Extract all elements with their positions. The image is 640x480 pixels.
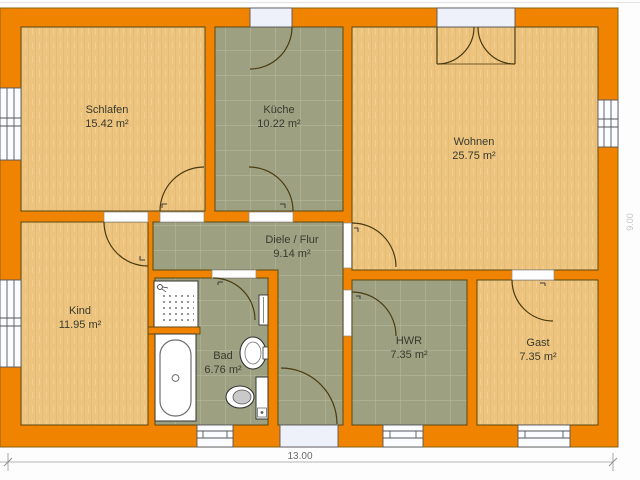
dimension-depth-label: 9.00 xyxy=(625,213,635,231)
room-floor-kind xyxy=(21,222,148,425)
door-leaf-wohnen xyxy=(344,223,352,268)
window-hwr xyxy=(383,425,423,447)
window-schlafen xyxy=(0,88,21,160)
floor-plan-canvas: Schlafen 15.42 m² Küche 10.22 m² Wohnen … xyxy=(0,0,640,480)
window-gast xyxy=(518,425,570,447)
door-leaf-bad xyxy=(212,270,256,278)
bathtub xyxy=(155,334,196,421)
entry-door-kueche xyxy=(250,8,292,27)
terrace-double-door-wohnen xyxy=(437,8,515,27)
door-leaf-schlafen xyxy=(160,212,204,222)
radiator xyxy=(259,295,268,325)
room-floor-hwr xyxy=(352,280,467,425)
window-bad xyxy=(197,425,233,447)
window-wohnen xyxy=(598,100,618,147)
room-floor-schlafen xyxy=(21,27,205,211)
door-leaf-kueche xyxy=(249,212,293,222)
window-kind xyxy=(0,280,21,367)
door-leaf-kind xyxy=(104,212,148,222)
door-leaf-gast xyxy=(512,270,554,280)
room-floor-gast xyxy=(477,280,598,425)
room-floor-wohnen xyxy=(352,27,598,270)
shower xyxy=(154,281,198,327)
door-leaf-hwr xyxy=(344,290,352,336)
shower-partition-wall xyxy=(148,327,200,334)
room-floor-kueche xyxy=(215,27,343,211)
dimension-width-label: 13.00 xyxy=(287,452,312,462)
floor-plan-drawing xyxy=(0,0,640,480)
entry-door-south xyxy=(280,425,338,447)
